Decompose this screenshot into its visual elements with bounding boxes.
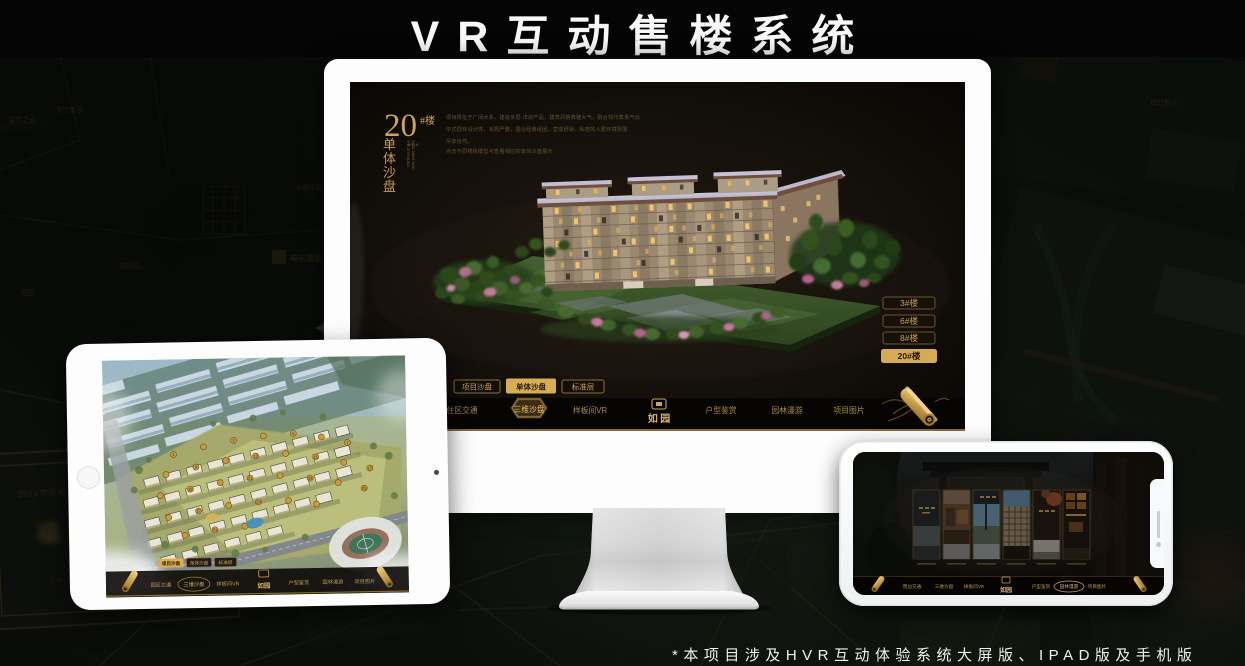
svg-text:园林漫游: 园林漫游 bbox=[1060, 583, 1079, 590]
svg-text:城市之光: 城市之光 bbox=[8, 115, 36, 124]
svg-text:沙: 沙 bbox=[383, 165, 396, 180]
svg-text:周边交通: 周边交通 bbox=[903, 583, 922, 590]
svg-text:8#楼: 8#楼 bbox=[900, 333, 918, 343]
svg-text:朝阳路: 朝阳路 bbox=[120, 261, 141, 270]
svg-text:尽享自然。: 尽享自然。 bbox=[446, 137, 473, 145]
svg-text:滨江金茂: 滨江金茂 bbox=[55, 105, 83, 114]
svg-text:项目择址于广阔水系，建造多层·洋房产品，建筑风格典雅大气，融: 项目择址于广阔水系，建造多层·洋房产品，建筑风格典雅大气，融合现代尊贵气派 bbox=[446, 113, 641, 121]
svg-text:中式园林设计感，布局严整，围合经典组团，营造舒适、私密的人居: 中式园林设计感，布局严整，围合经典组团，营造舒适、私密的人居环境氛围 bbox=[446, 125, 627, 133]
svg-text:盘: 盘 bbox=[383, 179, 396, 194]
svg-text:#楼: #楼 bbox=[420, 114, 435, 127]
svg-text:三维沙盘: 三维沙盘 bbox=[513, 404, 544, 414]
svg-text:体: 体 bbox=[383, 151, 396, 166]
svg-text:样板间VR: 样板间VR bbox=[964, 583, 985, 590]
svg-text:福园: 福园 bbox=[20, 288, 34, 297]
svg-text:如园: 如园 bbox=[1000, 586, 1012, 594]
svg-text:户型鉴赏: 户型鉴赏 bbox=[705, 405, 736, 415]
svg-text:20#楼: 20#楼 bbox=[898, 351, 921, 361]
svg-text:样板间VR: 样板间VR bbox=[573, 405, 608, 415]
svg-text:中央华庭: 中央华庭 bbox=[295, 183, 323, 192]
svg-text:如园: 如园 bbox=[257, 581, 271, 590]
svg-text:城北新区: 城北新区 bbox=[1150, 98, 1178, 107]
svg-text:项目图片: 项目图片 bbox=[1088, 583, 1107, 590]
svg-text:SAND TABLE MOD: SAND TABLE MOD bbox=[411, 140, 415, 170]
svg-text:单体沙盘: 单体沙盘 bbox=[516, 382, 546, 392]
svg-text:6#楼: 6#楼 bbox=[900, 316, 918, 326]
svg-text:点击不同楼栋模型可查看相应的单体沙盘展示: 点击不同楼栋模型可查看相应的单体沙盘展示 bbox=[446, 147, 553, 155]
svg-text:园林漫游: 园林漫游 bbox=[771, 405, 802, 415]
svg-text:单: 单 bbox=[383, 137, 396, 152]
svg-text:项目图片: 项目图片 bbox=[833, 405, 864, 415]
svg-text:福星惠誉: 福星惠誉 bbox=[290, 253, 322, 263]
svg-text:住区交通: 住区交通 bbox=[446, 405, 477, 415]
svg-text:THE 20TH BUILD: THE 20TH BUILD bbox=[406, 140, 410, 167]
svg-text:3#楼: 3#楼 bbox=[900, 298, 918, 308]
svg-text:三维沙盘: 三维沙盘 bbox=[935, 583, 954, 590]
svg-text:如 园: 如 园 bbox=[648, 412, 671, 425]
svg-text:项目沙盘: 项目沙盘 bbox=[462, 382, 492, 392]
svg-text:户型鉴赏: 户型鉴赏 bbox=[1032, 583, 1051, 590]
svg-text:标准层: 标准层 bbox=[572, 382, 595, 392]
